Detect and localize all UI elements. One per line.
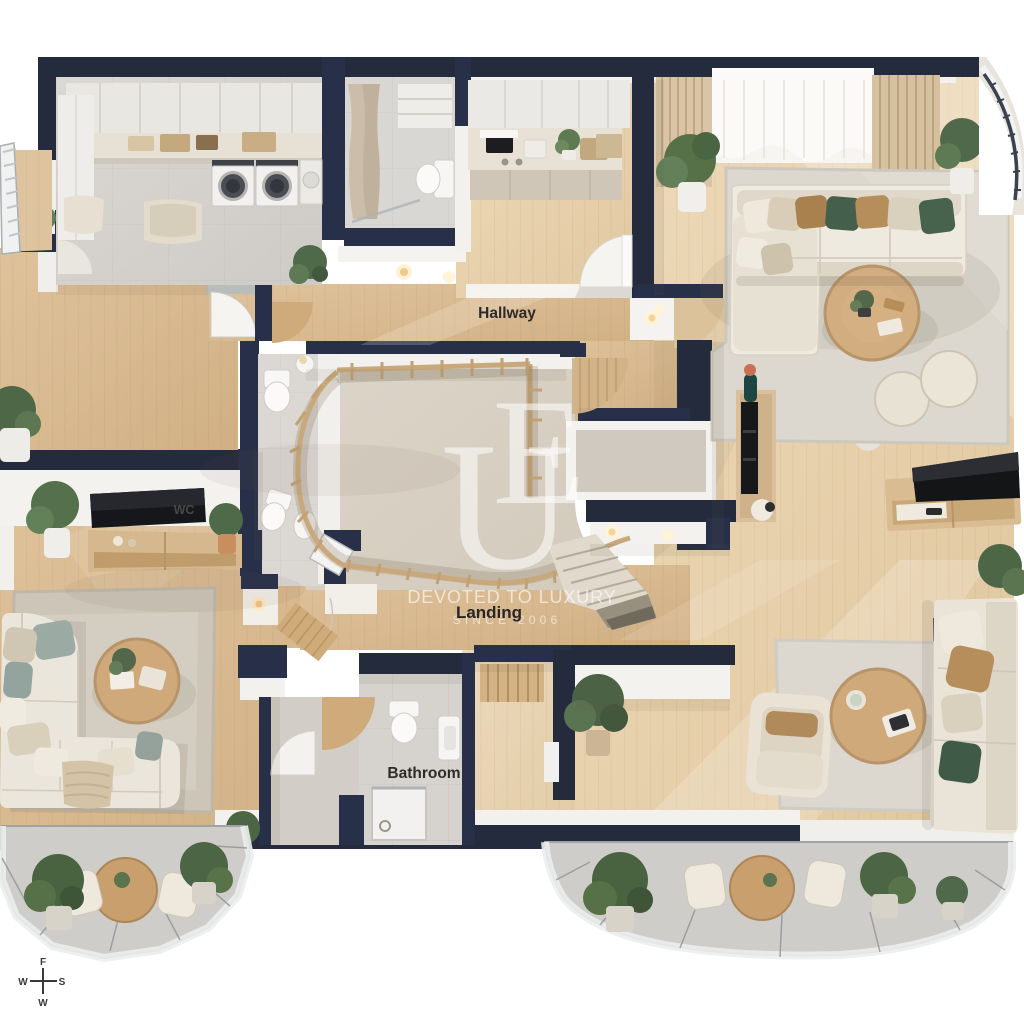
- svg-text:W: W: [18, 977, 28, 988]
- svg-text:Bathroom: Bathroom: [387, 765, 460, 782]
- svg-text:WC: WC: [174, 503, 195, 517]
- svg-text:Hallway: Hallway: [478, 305, 536, 322]
- svg-text:F: F: [40, 957, 46, 968]
- svg-text:W: W: [38, 998, 48, 1009]
- svg-text:Landing: Landing: [456, 603, 522, 622]
- svg-text:S: S: [59, 977, 66, 988]
- svg-text:E: E: [492, 367, 585, 536]
